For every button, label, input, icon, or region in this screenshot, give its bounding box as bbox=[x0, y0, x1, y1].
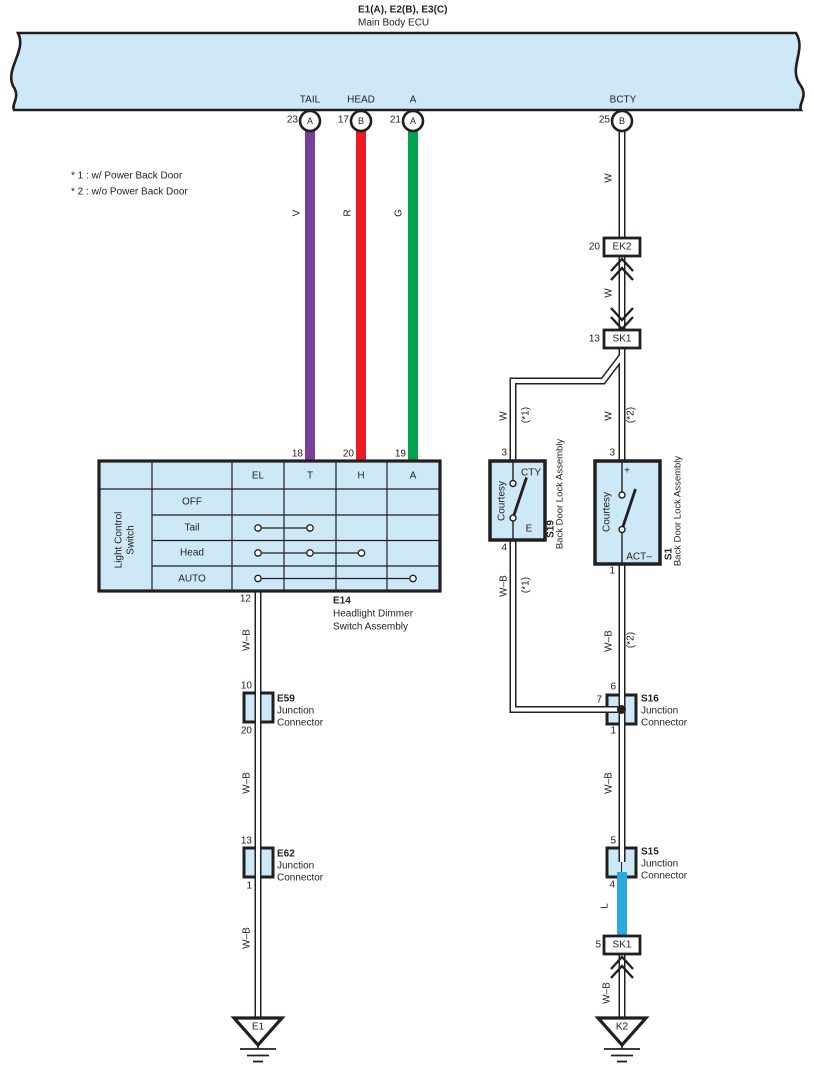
s16-pin-bottom: 1 bbox=[610, 725, 616, 737]
s19-terminal-cty: CTY bbox=[521, 467, 541, 479]
s16-pin-left: 7 bbox=[596, 694, 602, 706]
s1-courtesy-label: Courtesy bbox=[601, 492, 613, 532]
head-wire-red bbox=[356, 131, 366, 461]
ecu-connector-letter-a: A bbox=[410, 116, 416, 126]
wb-left-3: W–B bbox=[241, 927, 253, 949]
ecu-pin-label-tail: TAIL bbox=[300, 94, 320, 106]
wire-code-white-1: W bbox=[603, 173, 615, 182]
wiring-diagram-page: E1(A), E2(B), E3(C) Main Body ECU TAIL H… bbox=[0, 0, 814, 1073]
row-label-tail: Tail bbox=[184, 522, 199, 534]
variant-1-upper: (*1) bbox=[520, 407, 532, 423]
wb-left-1: W–B bbox=[241, 629, 253, 651]
ecu-connector-letter-head: B bbox=[358, 116, 364, 126]
ecu-band bbox=[11, 33, 803, 110]
s19-courtesy-label: Courtesy bbox=[496, 481, 508, 521]
e14-desc2: Switch Assembly bbox=[333, 621, 408, 633]
col-header-h: H bbox=[357, 470, 364, 482]
wire-code-green: G bbox=[393, 209, 405, 217]
e14-desc1: Headlight Dimmer bbox=[333, 608, 413, 620]
ecu-connector-letter-tail: A bbox=[307, 116, 313, 126]
switch-pin-12: 12 bbox=[240, 593, 251, 605]
note-1: * 1 : w/ Power Back Door bbox=[71, 170, 182, 182]
light-control-switch-label-line2: Switch bbox=[125, 512, 137, 569]
wb-s19-lower: W–B bbox=[498, 575, 510, 597]
s16-junction-dot bbox=[617, 705, 626, 714]
col-header-a: A bbox=[410, 470, 417, 482]
s19-terminal-e: E bbox=[526, 523, 533, 535]
e62-name: E62 bbox=[277, 848, 295, 860]
row-label-off: OFF bbox=[182, 496, 202, 508]
s15-desc2: Connector bbox=[641, 870, 687, 882]
s19-assembly-label: Back Door Lock Assembly bbox=[556, 439, 567, 549]
s1-terminal-act: ACT– bbox=[626, 551, 652, 563]
e59-pin-top: 10 bbox=[241, 680, 252, 692]
e62-desc1: Junction bbox=[277, 860, 314, 872]
blue-wire-l bbox=[617, 872, 627, 936]
ground-label-k2: K2 bbox=[616, 1021, 628, 1033]
sk1-lower-pin: 5 bbox=[595, 939, 601, 951]
ecu-pin-number-bcty: 25 bbox=[599, 114, 610, 126]
s1-pin-top: 3 bbox=[609, 447, 615, 459]
ecu-pin-label-head: HEAD bbox=[347, 94, 375, 106]
col-header-t: T bbox=[307, 470, 313, 482]
wire-code-violet: V bbox=[291, 210, 303, 217]
ecu-pin-number-a: 21 bbox=[390, 114, 401, 126]
col-header-el: EL bbox=[252, 470, 264, 482]
s16-name: S16 bbox=[641, 693, 659, 705]
switch-pin-18: 18 bbox=[292, 448, 303, 460]
s15-pin-top: 5 bbox=[610, 835, 616, 847]
ecu-pin-number-head: 17 bbox=[338, 114, 349, 126]
e59-desc2: Connector bbox=[277, 717, 323, 729]
row-label-head: Head bbox=[180, 547, 204, 559]
e14-name: E14 bbox=[333, 595, 351, 607]
ecu-title: E1(A), E2(B), E3(C) bbox=[358, 4, 447, 16]
ek2-name: EK2 bbox=[613, 241, 632, 253]
s16-pin-top: 6 bbox=[610, 681, 616, 693]
s1-assembly-label: Back Door Lock Assembly bbox=[674, 456, 685, 566]
e59-desc1: Junction bbox=[277, 705, 314, 717]
e62-pin-bottom: 1 bbox=[246, 880, 252, 892]
ecu-subtitle: Main Body ECU bbox=[358, 17, 429, 29]
wire-code-blue: L bbox=[599, 903, 611, 909]
s1-terminal-plus: + bbox=[624, 465, 630, 477]
wire-code-red: R bbox=[342, 209, 354, 216]
wb-right-3: W–B bbox=[601, 982, 613, 1004]
wb-s1-lower: W–B bbox=[603, 630, 615, 652]
light-control-switch-label-line1: Light Control bbox=[114, 512, 126, 569]
ek2-pin: 20 bbox=[589, 241, 600, 253]
sk1-lower-name: SK1 bbox=[613, 939, 632, 951]
e62-desc2: Connector bbox=[277, 872, 323, 884]
wire-code-white-2: W bbox=[603, 288, 615, 297]
row-label-auto: AUTO bbox=[178, 573, 206, 585]
switch-pin-19: 19 bbox=[395, 448, 406, 460]
s19-pin-top: 3 bbox=[501, 447, 507, 459]
switch-pin-20: 20 bbox=[343, 448, 354, 460]
ecu-pin-label-bcty: BCTY bbox=[610, 94, 637, 106]
s16-desc2: Connector bbox=[641, 717, 687, 729]
ground-label-e1: E1 bbox=[252, 1021, 264, 1033]
s1-pin-bottom: 1 bbox=[609, 565, 615, 577]
ecu-pin-label-a: A bbox=[410, 94, 417, 106]
s16-desc1: Junction bbox=[641, 705, 678, 717]
wire-code-white-s19: W bbox=[498, 411, 510, 420]
e62-pin-top: 13 bbox=[241, 835, 252, 847]
variant-2-upper: (*2) bbox=[625, 407, 637, 423]
sk1-upper-name: SK1 bbox=[613, 333, 632, 345]
variant-1-lower: (*1) bbox=[520, 577, 532, 593]
ecu-pin-number-tail: 23 bbox=[287, 114, 298, 126]
e59-name: E59 bbox=[277, 693, 295, 705]
e59-pin-bottom: 20 bbox=[241, 725, 252, 737]
s15-desc1: Junction bbox=[641, 858, 678, 870]
s19-pin-bottom: 4 bbox=[501, 542, 507, 554]
note-2: * 2 : w/o Power Back Door bbox=[71, 186, 188, 198]
s15-name: S15 bbox=[641, 846, 659, 858]
ecu-connector-letter-bcty: B bbox=[619, 116, 625, 126]
sk1-upper-pin: 13 bbox=[589, 333, 600, 345]
wire-code-white-s1: W bbox=[603, 411, 615, 420]
wb-right-2: W–B bbox=[603, 772, 615, 794]
wb-left-2: W–B bbox=[241, 772, 253, 794]
auto-wire-green bbox=[408, 131, 418, 461]
s15-pin-bottom: 4 bbox=[609, 879, 615, 891]
light-control-switch-table bbox=[99, 461, 440, 591]
ecu-pin-circles bbox=[300, 111, 632, 131]
tail-wire-violet bbox=[305, 131, 315, 461]
light-control-switch-label: Light Control Switch bbox=[114, 512, 137, 569]
variant-2-lower: (*2) bbox=[625, 632, 637, 648]
